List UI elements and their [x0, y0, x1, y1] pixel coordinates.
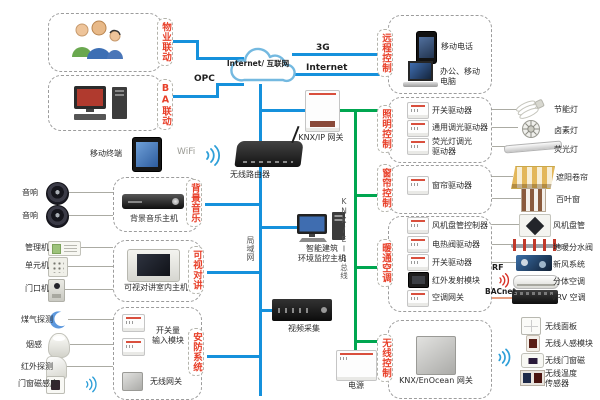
doorphone-line — [64, 289, 113, 290]
halogen-lamp-icon — [517, 119, 545, 139]
laptop-label: 办公、移动 电脑 — [440, 67, 486, 86]
bacnet-label: BACnet — [485, 287, 516, 296]
lan-label: 局域网 — [246, 236, 254, 262]
mobile-phone-icon — [416, 31, 437, 64]
wireless-pir-label: 无线人感模块 — [545, 339, 593, 349]
hvac-tab: 暖通空调 — [377, 239, 393, 287]
router-label: 无线路由器 — [220, 170, 280, 180]
mobile-terminal-label: 移动终端 — [90, 149, 122, 159]
power-supply-icon — [336, 350, 377, 381]
remote-tab: 远程控制 — [377, 29, 393, 77]
wireless-gateway-icon — [122, 372, 143, 391]
laptop-icon — [403, 61, 438, 87]
router-icon — [234, 141, 303, 167]
wireless-panel-icon — [521, 317, 541, 335]
door-magnet-signal-icon — [83, 374, 98, 394]
wireless-panel-label: 无线面板 — [545, 322, 577, 332]
unit-line — [67, 266, 113, 267]
ba-tab: BA联动 — [157, 79, 173, 130]
switch-driver-icon — [407, 102, 429, 119]
bacnet-line — [490, 297, 513, 299]
awning-line — [490, 176, 513, 177]
intercom-line — [207, 271, 261, 274]
knx-bus-label: KNX/EIB总线 — [340, 197, 348, 280]
cloud-label: Internet/ 互联网 — [226, 59, 290, 68]
halogen-lamp-label: 卤素灯 — [554, 126, 578, 136]
monitoring-host-label: 智能建筑 环境监控主机 — [286, 244, 358, 263]
speaker1-line — [68, 192, 113, 193]
speaker2-icon — [46, 205, 69, 228]
valve-driver-label: 电热阀驱动器 — [432, 240, 480, 250]
curtain-driver-icon — [407, 176, 429, 195]
property-tab: 物业联动 — [157, 18, 173, 66]
people-icon — [68, 19, 123, 64]
bgm-host-label: 背景音乐主机 — [118, 214, 190, 224]
line-3g — [292, 53, 380, 56]
knx-system-diagram: 物业联动 BA联动 背景音乐 可视对讲 安防系统 远程控制 照明控制 窗帘控制 … — [0, 0, 600, 400]
fluorescent-driver-label: 荧光灯调光 驱动器 — [432, 137, 478, 156]
internet-label: Internet — [306, 63, 347, 74]
split-ac-label: 分体空调 — [553, 277, 585, 287]
cfl-lamp-label: 节能灯 — [554, 105, 578, 115]
knx-bus-h-line — [336, 109, 382, 112]
fresh-air-label: 新风系统 — [553, 260, 585, 270]
enocean-gateway-icon — [416, 336, 456, 375]
mobile-phone-label: 移动电话 — [441, 42, 473, 52]
wireless-temp-sensor-icon — [520, 370, 545, 386]
power-supply-label: 电源 — [344, 381, 368, 391]
door-magnet-label: 门窗磁感应 — [18, 379, 58, 389]
switch-input-module-icon-1 — [122, 314, 145, 332]
cfl-lamp-icon — [515, 97, 547, 119]
wireless-gateway-label: 无线网关 — [150, 377, 182, 387]
manifold-label: 地暖分水阀 — [553, 243, 593, 253]
infrared-line — [66, 366, 113, 367]
ir-emitter-icon — [408, 272, 429, 288]
cfl-line — [490, 109, 517, 110]
knx-bus-v-line — [354, 109, 357, 354]
wireless-pir-icon — [526, 335, 540, 352]
blinds-line — [490, 198, 522, 199]
gateway-stub-line — [259, 109, 307, 112]
ir-emitter-label: 红外发射模块 — [432, 276, 480, 286]
wireless-tab: 无线控制 — [377, 334, 393, 382]
knx-ip-gateway-icon — [305, 90, 340, 132]
intercom-host-label: 可视对讲室内主机 — [116, 283, 196, 293]
rf-label: RF — [492, 263, 504, 273]
curtain-driver-label: 窗帘驱动器 — [432, 181, 472, 191]
dimmer-driver-label: 通用调光驱动器 — [432, 123, 488, 133]
fancoil-icon — [519, 214, 551, 237]
switch-driver-label: 开关驱动器 — [432, 106, 472, 116]
ac-gateway-icon — [407, 290, 429, 307]
vrv-ac-label: VRV 空调 — [551, 293, 586, 303]
gas-label: 煤气探测 — [21, 315, 53, 325]
tablet-icon — [132, 137, 162, 172]
dimmer-driver-icon — [407, 120, 429, 137]
halogen-line — [490, 127, 518, 128]
speaker1-icon — [46, 182, 69, 205]
unit-label: 单元机 — [25, 261, 49, 271]
ba-line-h1 — [173, 95, 219, 98]
knx-ip-gateway-label: KNX/IP 网关 — [283, 133, 359, 143]
fluorescent-tube-label: 荧光灯 — [554, 145, 578, 155]
wireless-signal-icon — [495, 346, 512, 368]
curtain-tab: 窗帘控制 — [377, 164, 393, 212]
bgm-host-icon — [122, 194, 184, 209]
wireless-temp-sensor-label: 无线温度 传感器 — [545, 369, 581, 388]
fancoil-label: 风机盘管 — [553, 221, 585, 231]
blinds-icon — [521, 188, 546, 212]
speaker2-line — [68, 215, 113, 216]
smoke-line — [70, 344, 113, 345]
fluorescent-driver-icon — [407, 138, 429, 155]
bgm-line — [205, 203, 261, 206]
mgmt-label: 管理机 — [25, 243, 49, 253]
mgmt-icon — [48, 241, 81, 256]
opc-label: OPC — [194, 74, 215, 85]
infrared-label: 红外探测 — [21, 362, 53, 372]
fresh-air-icon — [516, 255, 552, 271]
video-capture-icon — [272, 299, 332, 321]
smoke-label: 烟感 — [26, 340, 42, 350]
awning-icon — [511, 166, 555, 189]
blinds-label: 百叶窗 — [556, 195, 580, 205]
intercom-monitor-icon — [127, 249, 180, 282]
lighting-tab: 照明控制 — [377, 105, 393, 153]
unit-icon — [48, 257, 68, 277]
smoke-sensor-icon — [48, 333, 70, 358]
wireless-door-magnet-icon — [521, 353, 544, 368]
enocean-gateway-label: KNX/EnOcean 网关 — [394, 376, 478, 386]
fancoil-controller-icon — [407, 217, 429, 234]
switch-input-module-icon-2 — [122, 338, 145, 356]
ac-gateway-label: 空调网关 — [432, 293, 464, 303]
wifi-signal-icon — [203, 142, 221, 168]
hvac-switch-driver-icon — [407, 254, 429, 271]
valve-driver-icon — [407, 236, 429, 253]
fancoil-line — [490, 224, 520, 225]
manifold-line — [490, 244, 513, 245]
video-capture-label: 视频采集 — [284, 324, 324, 334]
wireless-door-magnet-label: 无线门窗磁 — [545, 356, 585, 366]
security-line — [207, 355, 261, 358]
gas-line — [68, 319, 113, 320]
lan-backbone-line — [259, 84, 262, 396]
doorphone-icon — [48, 279, 65, 302]
speaker2-label: 音响 — [22, 211, 38, 221]
mgmt-line — [80, 247, 113, 248]
3g-label: 3G — [316, 43, 330, 54]
hvac-switch-driver-label: 开关驱动器 — [432, 258, 472, 268]
bgm-tab: 背景音乐 — [186, 179, 202, 227]
switch-input-label: 开关量 输入模块 — [148, 326, 188, 345]
wifi-label: WiFi — [177, 147, 195, 158]
speaker1-label: 音响 — [22, 188, 38, 198]
security-tab: 安防系统 — [188, 328, 204, 376]
intercom-tab: 可视对讲 — [188, 246, 204, 294]
awning-label: 遮阳卷帘 — [556, 173, 588, 183]
ba-computer-icon — [72, 84, 130, 122]
fancoil-controller-label: 风机盘管控制器 — [432, 221, 488, 231]
doorphone-label: 门口机 — [25, 284, 49, 294]
